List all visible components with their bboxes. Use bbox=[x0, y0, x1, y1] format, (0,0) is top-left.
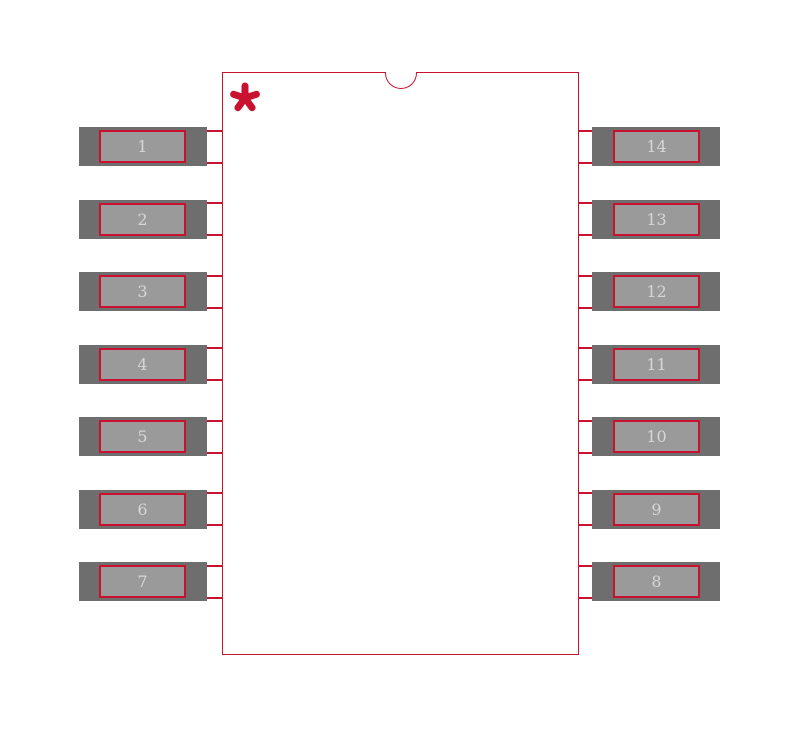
pad-number: 14 bbox=[613, 130, 700, 163]
pad-10: 10 bbox=[592, 417, 720, 456]
pin1-marker-asterisk-icon bbox=[227, 80, 263, 116]
pad-number: 12 bbox=[613, 275, 700, 308]
pad-number: 13 bbox=[613, 203, 700, 236]
pad-6: 6 bbox=[79, 490, 207, 529]
pin-lead-line bbox=[578, 275, 592, 277]
pin-lead-line bbox=[578, 524, 592, 526]
pin-lead-line bbox=[578, 234, 592, 236]
pin-lead-line bbox=[207, 565, 222, 567]
pin-lead-line bbox=[207, 234, 222, 236]
pad-11: 11 bbox=[592, 345, 720, 384]
pin-lead-line bbox=[578, 379, 592, 381]
pad-number: 4 bbox=[99, 348, 186, 381]
pin-lead-line bbox=[578, 347, 592, 349]
pin-lead-line bbox=[207, 492, 222, 494]
pad-number: 6 bbox=[99, 493, 186, 526]
pin-lead-line bbox=[578, 492, 592, 494]
pin-lead-line bbox=[207, 379, 222, 381]
pad-2: 2 bbox=[79, 200, 207, 239]
pin-lead-line bbox=[578, 452, 592, 454]
pin-lead-line bbox=[207, 347, 222, 349]
pin-lead-line bbox=[207, 275, 222, 277]
orientation-notch-icon bbox=[385, 72, 417, 89]
pad-number: 7 bbox=[99, 565, 186, 598]
pad-number: 8 bbox=[613, 565, 700, 598]
pin-lead-line bbox=[207, 597, 222, 599]
pad-14: 14 bbox=[592, 127, 720, 166]
pin-lead-line bbox=[578, 130, 592, 132]
pad-7: 7 bbox=[79, 562, 207, 601]
pad-12: 12 bbox=[592, 272, 720, 311]
pad-number: 5 bbox=[99, 420, 186, 453]
pin-lead-line bbox=[578, 420, 592, 422]
pad-1: 1 bbox=[79, 127, 207, 166]
pin-lead-line bbox=[578, 597, 592, 599]
pad-number: 9 bbox=[613, 493, 700, 526]
pad-13: 13 bbox=[592, 200, 720, 239]
pad-5: 5 bbox=[79, 417, 207, 456]
pin-lead-line bbox=[578, 565, 592, 567]
pad-number: 1 bbox=[99, 130, 186, 163]
pin-lead-line bbox=[207, 202, 222, 204]
pin-lead-line bbox=[207, 130, 222, 132]
pad-8: 8 bbox=[592, 562, 720, 601]
pad-9: 9 bbox=[592, 490, 720, 529]
pad-number: 3 bbox=[99, 275, 186, 308]
pin-lead-line bbox=[578, 162, 592, 164]
pin-lead-line bbox=[578, 307, 592, 309]
pad-number: 2 bbox=[99, 203, 186, 236]
pad-number: 10 bbox=[613, 420, 700, 453]
pin-lead-line bbox=[578, 202, 592, 204]
pad-number: 11 bbox=[613, 348, 700, 381]
pin-lead-line bbox=[207, 420, 222, 422]
pin-lead-line bbox=[207, 307, 222, 309]
pad-3: 3 bbox=[79, 272, 207, 311]
pad-4: 4 bbox=[79, 345, 207, 384]
pin-lead-line bbox=[207, 452, 222, 454]
component-body-outline bbox=[222, 72, 579, 655]
pin-lead-line bbox=[207, 524, 222, 526]
footprint-diagram: 1234567141312111098 bbox=[0, 0, 800, 729]
pin-lead-line bbox=[207, 162, 222, 164]
